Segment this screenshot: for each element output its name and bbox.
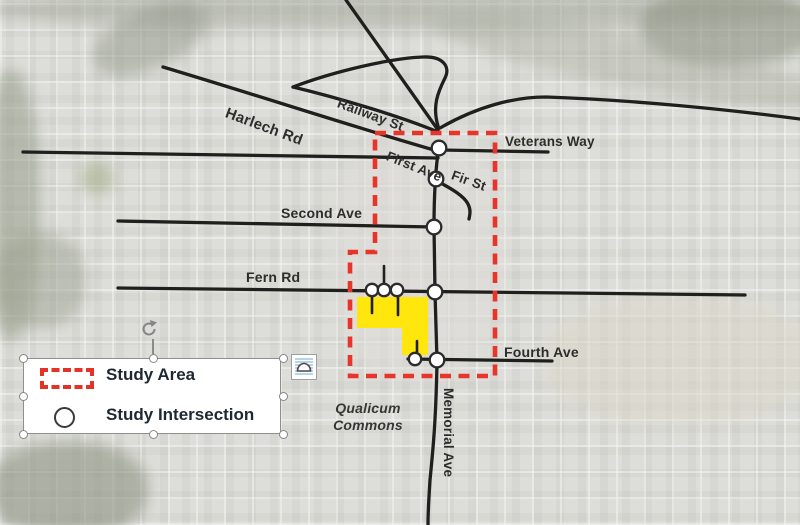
rotation-handle-stem [152,339,154,354]
intersection-memorial-second [427,220,442,235]
road-first-ave [23,152,438,158]
road-lines [23,0,800,525]
selection-handle-bottomcenter[interactable] [149,430,158,439]
label-veterans-way: Veterans Way [505,134,595,149]
legend-study-area-symbol [40,368,94,389]
intersection-memorial-fourth [430,353,445,368]
label-fourth-ave: Fourth Ave [504,344,579,360]
selection-handle-bottomleft[interactable] [19,430,28,439]
selection-handle-midleft[interactable] [19,392,28,401]
intersection-memorial-fern [428,285,443,300]
layout-options-icon [293,356,315,378]
label-qualicum-commons: Qualicum Commons [328,400,408,433]
legend-box[interactable]: Study Area Study Intersection [23,358,281,434]
road-memorial-ave [428,146,439,525]
intersection-fern-access-3 [391,284,403,296]
legend-study-area-label: Study Area [106,365,195,385]
map-document-canvas: Harlech Rd Railway St First Ave Fir St V… [0,0,800,525]
intersection-fourth-access [409,353,421,365]
rotate-handle-icon[interactable] [138,318,160,340]
intersection-fern-access-1 [366,284,378,296]
legend-study-intersection-label: Study Intersection [106,405,254,425]
intersection-memorial-first [432,141,447,156]
label-second-ave: Second Ave [281,205,362,221]
selection-handle-topleft[interactable] [19,354,28,363]
qualicum-line1: Qualicum [335,400,400,416]
selection-handle-topcenter[interactable] [149,354,158,363]
layout-options-button[interactable] [291,354,317,380]
label-fern-rd: Fern Rd [246,269,300,285]
legend-study-intersection-symbol [54,407,75,428]
road-second-ave [118,221,434,227]
intersection-fern-access-2 [378,284,390,296]
selection-handle-topright[interactable] [279,354,288,363]
road-railway-east [440,97,800,128]
label-memorial-ave: Memorial Ave [441,388,456,477]
qualicum-line2: Commons [333,417,403,433]
street-network-overlay [0,0,800,525]
selection-handle-midright[interactable] [279,392,288,401]
selection-handle-bottomright[interactable] [279,430,288,439]
